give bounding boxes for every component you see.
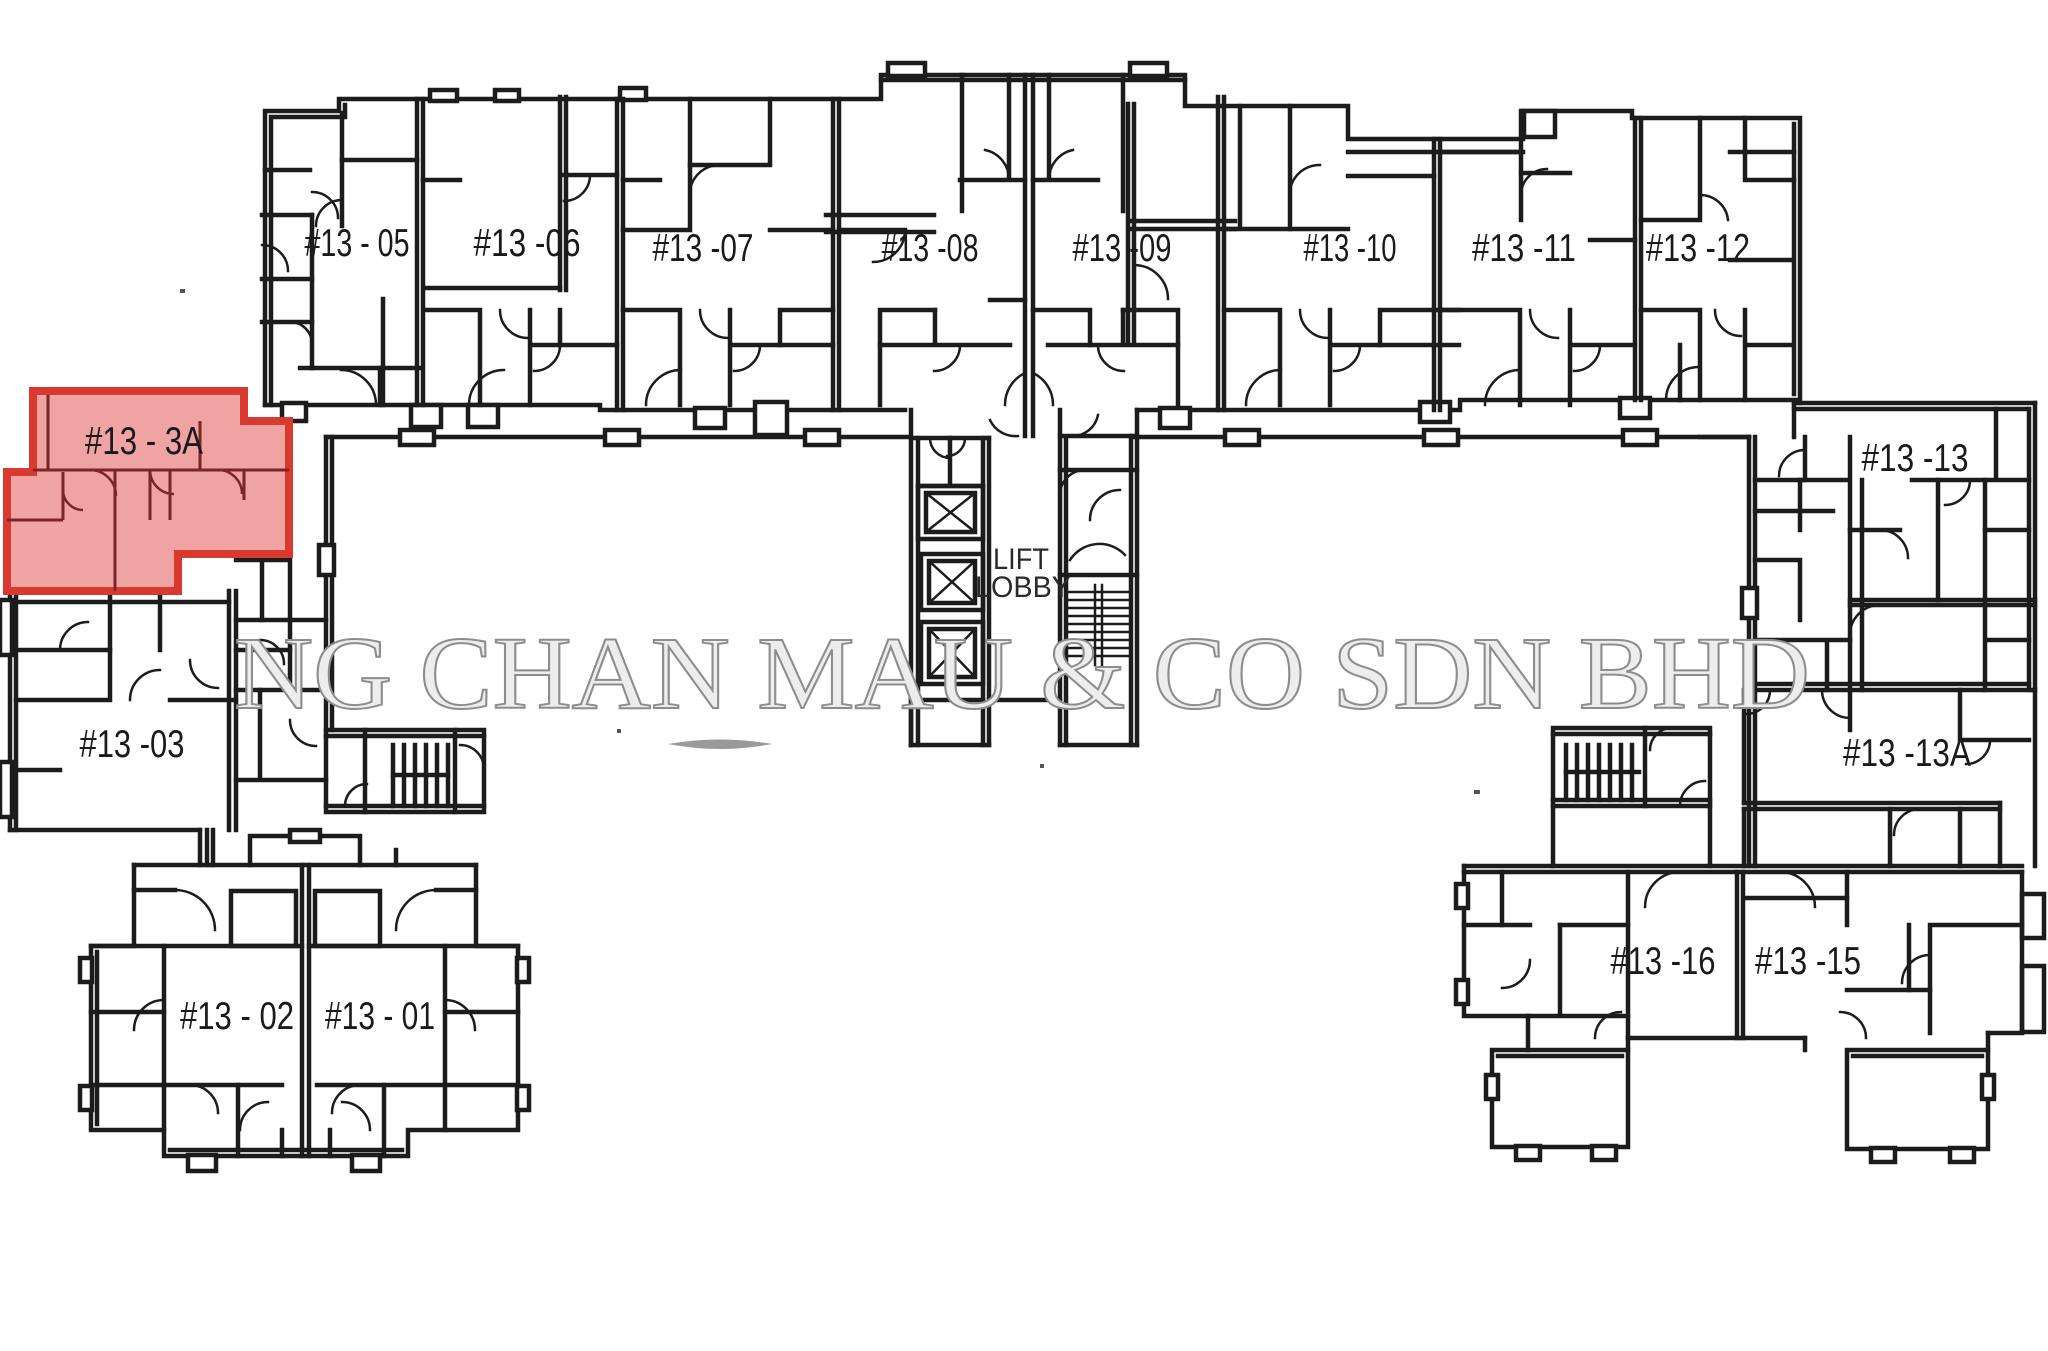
- svg-text:#13 -12: #13 -12: [1646, 227, 1750, 270]
- svg-text:#13 -13A: #13 -13A: [1843, 732, 1971, 775]
- svg-text:#13 - 01: #13 - 01: [325, 995, 435, 1038]
- svg-text:#13 -10: #13 -10: [1304, 227, 1397, 270]
- svg-text:NG CHAN MAU & CO SDN BHD: NG CHAN MAU & CO SDN BHD: [234, 616, 1810, 731]
- svg-text:#13 -11: #13 -11: [1472, 227, 1576, 270]
- svg-text:#13 -16: #13 -16: [1611, 940, 1716, 983]
- svg-text:#13 - 05: #13 - 05: [305, 222, 410, 265]
- svg-text:#13 -13: #13 -13: [1862, 437, 1969, 480]
- svg-text:#13 -03: #13 -03: [80, 723, 185, 766]
- svg-text:#13 -15: #13 -15: [1755, 940, 1861, 983]
- svg-text:#13 -08: #13 -08: [882, 227, 979, 270]
- svg-text:LOBBY: LOBBY: [975, 571, 1071, 604]
- svg-text:#13 - 3A: #13 - 3A: [85, 420, 203, 463]
- svg-text:#13 -06: #13 -06: [474, 222, 581, 265]
- svg-text:#13 -09: #13 -09: [1073, 227, 1172, 270]
- svg-text:#13 -07: #13 -07: [653, 227, 754, 270]
- svg-text:#13 - 02: #13 - 02: [180, 995, 294, 1038]
